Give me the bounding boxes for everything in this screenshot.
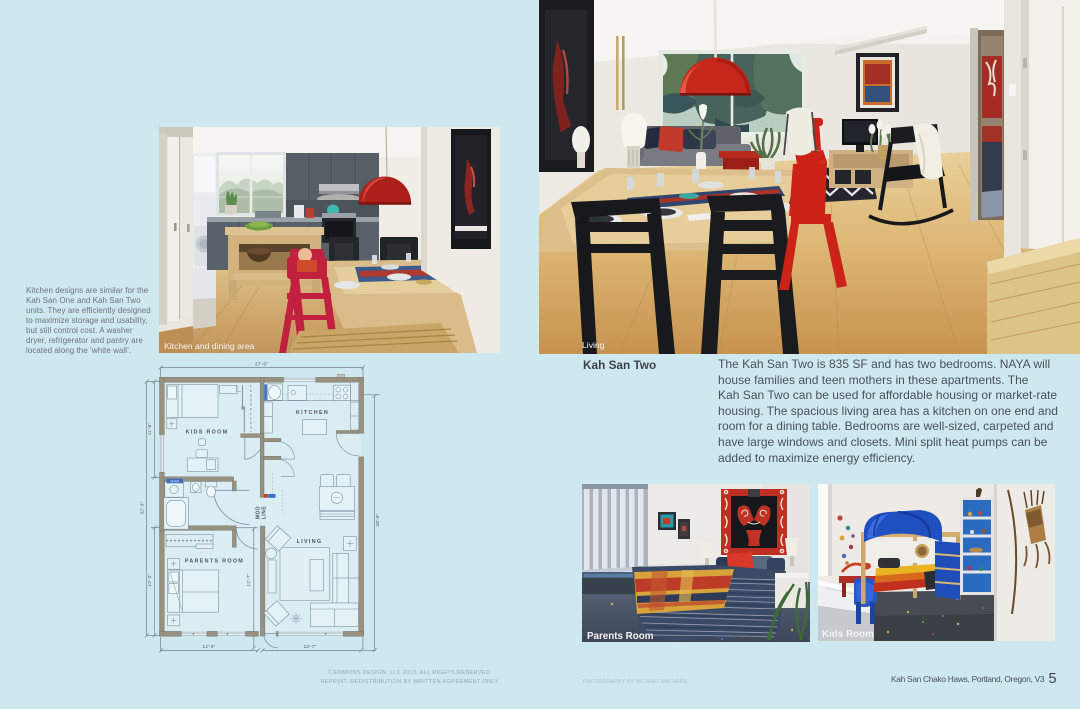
- svg-text:12'-7": 12'-7": [246, 573, 251, 586]
- svg-text:LIVING: LIVING: [297, 539, 323, 545]
- svg-text:12'-2": 12'-2": [147, 573, 152, 586]
- svg-text:13'-7": 13'-7": [304, 644, 317, 649]
- svg-text:12'-6": 12'-6": [203, 644, 216, 649]
- svg-text:PARENTS ROOM: PARENTS ROOM: [185, 559, 244, 565]
- svg-text:O+IO: O+IO: [170, 479, 179, 483]
- svg-text:MOD: MOD: [255, 506, 261, 519]
- svg-text:32'-3": 32'-3": [140, 501, 145, 514]
- svg-text:KIDS ROOM: KIDS ROOM: [186, 429, 229, 435]
- svg-text:Kids Room: Kids Room: [822, 629, 874, 640]
- svg-text:KITCHEN: KITCHEN: [296, 410, 329, 416]
- svg-text:LINE: LINE: [262, 506, 268, 520]
- svg-text:28'-9": 28'-9": [375, 513, 380, 526]
- svg-text:Living: Living: [582, 340, 605, 350]
- svg-text:Parents Room: Parents Room: [587, 631, 654, 642]
- svg-text:Kitchen and dining area: Kitchen and dining area: [164, 341, 255, 351]
- svg-text:27'-5": 27'-5": [255, 362, 268, 367]
- svg-text:11'-6": 11'-6": [147, 423, 152, 436]
